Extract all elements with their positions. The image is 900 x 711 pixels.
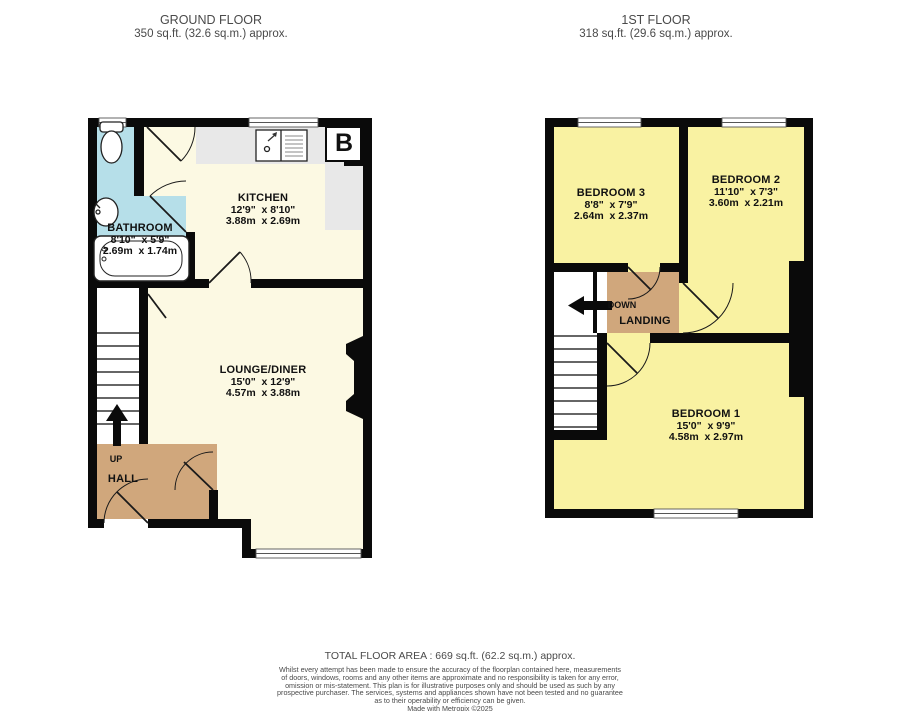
boiler-label: B <box>335 130 353 156</box>
room-dims-bedroom1-metric: 4.58m x 2.97m <box>669 432 743 443</box>
room-dims-bathroom-metric: 2.69m x 1.74m <box>103 246 177 257</box>
disclaimer-text: Whilst every attempt has been made to en… <box>130 666 770 711</box>
metropix-credit: Made with Metropix ©2025 <box>130 705 770 711</box>
room-dims-bedroom3-metric: 2.64m x 2.37m <box>574 211 648 222</box>
room-label-bathroom: BATHROOM <box>107 223 173 235</box>
ground-floor-plan <box>88 118 372 558</box>
chimney-first <box>789 261 804 397</box>
room-dims-kitchen-metric: 3.88m x 2.69m <box>226 216 300 227</box>
up-label: UP <box>110 455 123 464</box>
lounge-bay <box>242 449 364 550</box>
kitchen-sink-icon <box>256 130 307 161</box>
floorplan-drawing <box>0 0 900 711</box>
toilet-icon <box>100 122 123 163</box>
ground-floor-title: GROUND FLOOR <box>160 14 262 27</box>
down-label: DOWN <box>608 301 637 310</box>
room-label-kitchen: KITCHEN <box>238 193 288 205</box>
kitchen-counter-right <box>325 164 363 230</box>
room-dims-lounge-metric: 4.57m x 3.88m <box>226 388 300 399</box>
floorplan-canvas: GROUND FLOOR 350 sq.ft. (32.6 sq.m.) app… <box>0 0 900 711</box>
ground-floor-area: 350 sq.ft. (32.6 sq.m.) approx. <box>134 28 287 40</box>
room-label-landing: LANDING <box>619 316 671 328</box>
room-label-bedroom2: BEDROOM 2 <box>712 175 780 187</box>
first-floor-title: 1ST FLOOR <box>621 14 690 27</box>
room-label-lounge: LOUNGE/DINER <box>220 365 307 377</box>
room-dims-bedroom2-metric: 3.60m x 2.21m <box>709 198 783 209</box>
room-label-hall: HALL <box>108 474 138 486</box>
total-floor-area: TOTAL FLOOR AREA : 669 sq.ft. (62.2 sq.m… <box>325 651 576 662</box>
room-label-bedroom1: BEDROOM 1 <box>672 409 740 421</box>
first-floor-area: 318 sq.ft. (29.6 sq.m.) approx. <box>579 28 732 40</box>
room-label-bedroom3: BEDROOM 3 <box>577 188 645 200</box>
